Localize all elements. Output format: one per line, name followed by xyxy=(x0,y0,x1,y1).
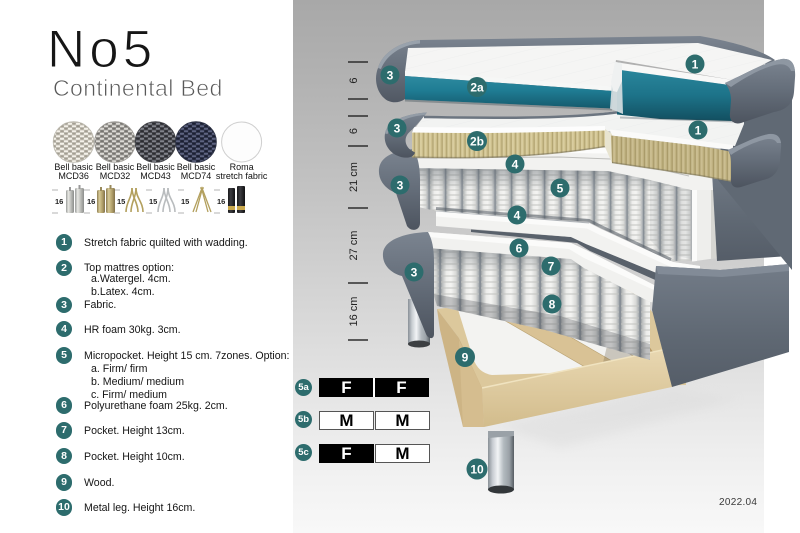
svg-text:9: 9 xyxy=(462,350,469,364)
svg-text:4: 4 xyxy=(512,157,519,171)
svg-text:2a: 2a xyxy=(470,80,484,94)
svg-text:2b: 2b xyxy=(470,134,484,148)
svg-text:3: 3 xyxy=(387,68,394,82)
svg-text:27 cm: 27 cm xyxy=(348,231,360,261)
svg-text:3: 3 xyxy=(411,265,418,279)
svg-text:1: 1 xyxy=(695,123,702,137)
svg-text:16 cm: 16 cm xyxy=(348,297,360,327)
svg-text:3: 3 xyxy=(397,178,404,192)
svg-text:4: 4 xyxy=(514,208,521,222)
svg-text:3: 3 xyxy=(394,121,401,135)
svg-text:5: 5 xyxy=(557,181,564,195)
svg-text:8: 8 xyxy=(549,297,556,311)
svg-text:6: 6 xyxy=(516,241,523,255)
svg-text:6: 6 xyxy=(348,128,360,134)
svg-text:10: 10 xyxy=(470,462,484,476)
svg-text:1: 1 xyxy=(692,57,699,71)
svg-text:6: 6 xyxy=(348,77,360,83)
svg-text:7: 7 xyxy=(548,259,555,273)
svg-text:21 cm: 21 cm xyxy=(348,162,360,192)
